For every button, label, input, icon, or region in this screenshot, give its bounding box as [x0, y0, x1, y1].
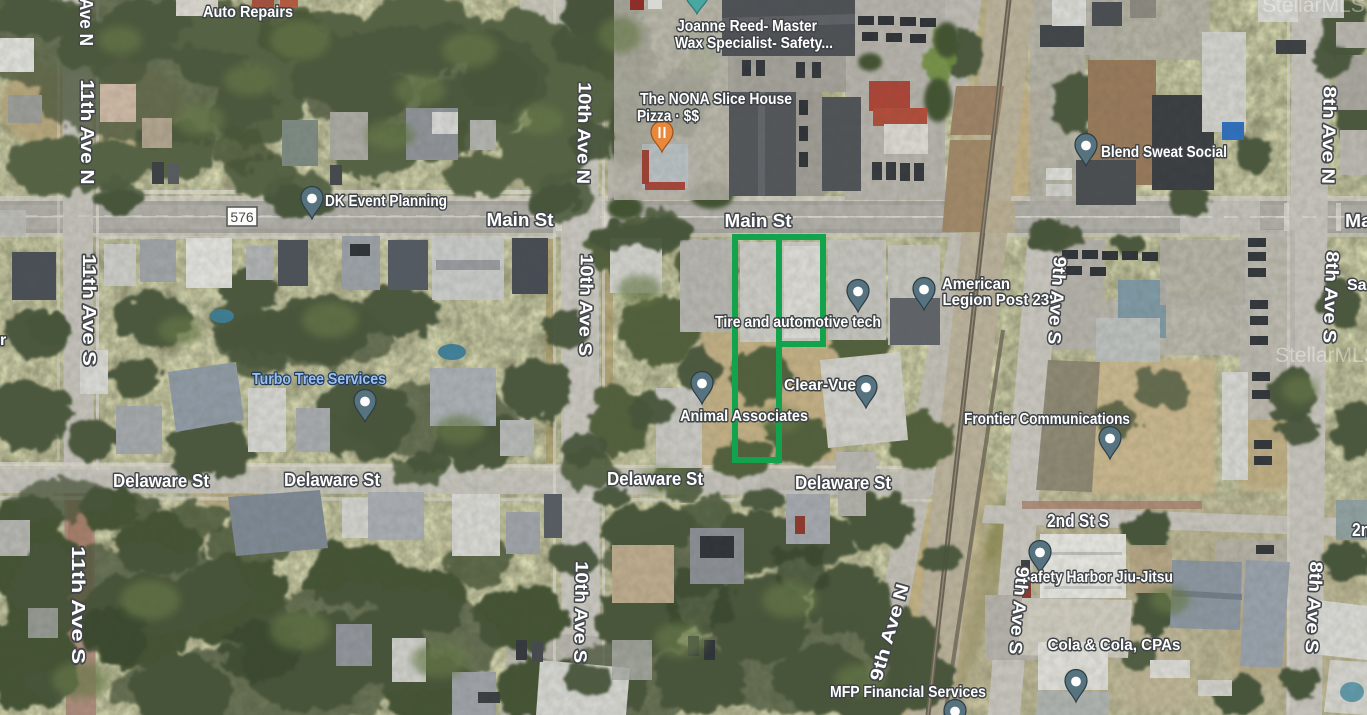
svg-text:Ave N: Ave N: [76, 0, 96, 46]
svg-text:StellarMLS: StellarMLS: [1275, 344, 1367, 367]
svg-text:DK Event Planning: DK Event Planning: [325, 193, 447, 210]
svg-text:Delaware St: Delaware St: [607, 469, 703, 489]
svg-text:Joanne Reed- Master: Joanne Reed- Master: [677, 18, 817, 35]
svg-text:8th Ave S: 8th Ave S: [1319, 251, 1342, 344]
svg-text:2nd St S: 2nd St S: [1047, 511, 1109, 531]
svg-text:Sa: Sa: [1347, 277, 1367, 294]
svg-text:10th Ave S: 10th Ave S: [570, 561, 592, 663]
svg-text:576: 576: [230, 209, 254, 225]
svg-text:11th Ave S: 11th Ave S: [79, 254, 99, 366]
svg-text:Delaware St: Delaware St: [284, 470, 380, 490]
svg-text:The NONA Slice House: The NONA Slice House: [640, 91, 792, 108]
svg-text:MFP Financial Services: MFP Financial Services: [830, 684, 986, 701]
svg-text:Animal Associates: Animal Associates: [680, 408, 808, 425]
svg-text:2nd: 2nd: [1352, 520, 1367, 540]
svg-text:Main St: Main St: [487, 210, 554, 230]
svg-text:Clear-Vue: Clear-Vue: [784, 377, 856, 394]
svg-text:Turbo Tree Services: Turbo Tree Services: [252, 371, 386, 388]
svg-text:StellarMLS: StellarMLS: [1262, 0, 1365, 17]
svg-text:Pizza · $$: Pizza · $$: [637, 108, 699, 125]
svg-text:Auto Repairs: Auto Repairs: [203, 4, 293, 21]
svg-text:American: American: [942, 276, 1010, 293]
svg-text:Wax Specialist- Safety...: Wax Specialist- Safety...: [675, 35, 833, 52]
svg-text:Tire and automotive tech: Tire and automotive tech: [715, 314, 881, 331]
svg-text:10th Ave S: 10th Ave S: [575, 254, 597, 356]
svg-text:Safety Harbor Jiu-Jitsu: Safety Harbor Jiu-Jitsu: [1021, 569, 1173, 586]
svg-text:Legion Post 238: Legion Post 238: [943, 292, 1058, 309]
svg-text:Main: Main: [1345, 211, 1367, 231]
svg-text:Delaware St: Delaware St: [795, 473, 891, 493]
svg-text:r: r: [0, 332, 6, 349]
svg-text:10th Ave N: 10th Ave N: [573, 82, 595, 184]
svg-text:Cola & Cola, CPAs: Cola & Cola, CPAs: [1048, 637, 1181, 654]
svg-text:Delaware St: Delaware St: [113, 471, 209, 491]
svg-text:11th Ave N: 11th Ave N: [77, 80, 97, 185]
svg-text:8th Ave N: 8th Ave N: [1318, 86, 1340, 184]
svg-text:Blend Sweat Social: Blend Sweat Social: [1101, 144, 1227, 161]
svg-text:11th Ave S: 11th Ave S: [68, 546, 88, 664]
svg-text:Main St: Main St: [725, 211, 792, 231]
svg-text:Frontier Communications: Frontier Communications: [964, 411, 1130, 428]
